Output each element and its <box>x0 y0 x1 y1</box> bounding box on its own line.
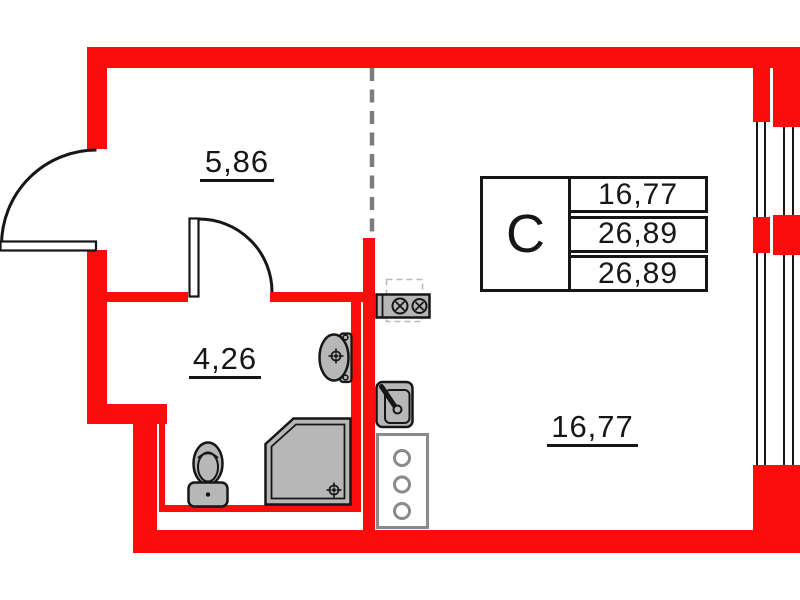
area-row-total: 26,89 <box>568 216 708 253</box>
floor-plan: 5,86 4,26 16,77 C 16,77 26,89 26,89 <box>0 0 800 600</box>
kitchen-sink-icon <box>377 382 413 427</box>
interior-door-icon <box>190 219 273 297</box>
shower-icon <box>266 419 351 505</box>
bathroom-sink-icon <box>320 334 352 383</box>
room-area-label-living: 16,77 <box>547 411 638 447</box>
toilet-icon <box>189 443 228 507</box>
apartment-areas-column: 16,77 26,89 26,89 <box>568 176 708 292</box>
utility-shaft-icon <box>378 435 428 528</box>
apartment-info-table: C 16,77 26,89 26,89 <box>480 176 708 292</box>
plan-drawing <box>0 0 800 600</box>
room-area-label-bathroom: 4,26 <box>189 343 261 379</box>
entry-door-icon <box>1 150 97 251</box>
apartment-type-cell: C <box>480 176 571 292</box>
area-row-total-reduced: 26,89 <box>568 255 708 292</box>
room-area-label-hallway: 5,86 <box>200 146 274 182</box>
area-row-living: 16,77 <box>568 176 708 213</box>
stove-icon <box>377 295 430 318</box>
